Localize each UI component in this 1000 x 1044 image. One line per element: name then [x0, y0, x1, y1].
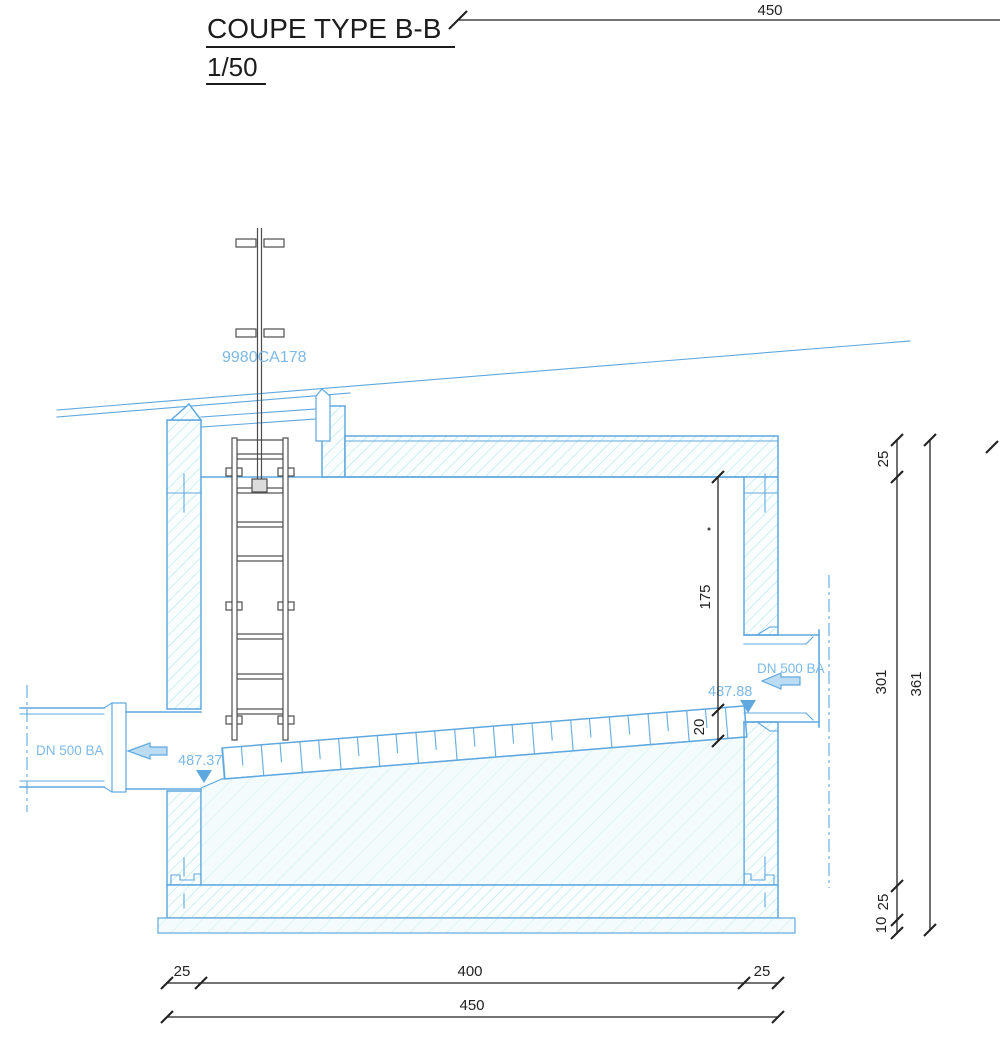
dim-channel-depth: 20	[691, 719, 708, 736]
left-wall-chamfer	[171, 404, 201, 420]
invert-marker-left-icon	[196, 770, 212, 783]
dim-slab: 25	[875, 451, 892, 468]
lean-concrete	[158, 918, 795, 933]
dim-floor: 25	[875, 894, 892, 911]
drawing-scale: 1/50	[207, 52, 258, 82]
dim-total-height: 361	[908, 671, 925, 696]
ground-lines	[57, 341, 910, 417]
pipe-socket	[112, 703, 126, 792]
floor-slab	[167, 885, 778, 918]
ladder-rail-left	[232, 438, 237, 740]
dim-wall-left: 25	[174, 963, 191, 980]
dim-inner-width: 400	[457, 963, 482, 980]
invert-level-left: 487.37	[178, 753, 222, 769]
dim-wall-right: 25	[754, 963, 771, 980]
rod-handle	[236, 239, 256, 247]
right-wall-upper	[744, 477, 778, 635]
dim-lean: 10	[873, 917, 890, 934]
concrete-structure	[158, 389, 795, 933]
rod-handle	[264, 239, 284, 247]
dim-top-total: 450	[757, 2, 782, 19]
section-drawing: 9980CA178 DN 500 BA DN 500 BA 487.37 487…	[0, 0, 1000, 1044]
ladder-rung	[237, 709, 283, 714]
equipment-tag-label: 9980CA178	[222, 349, 307, 366]
flow-arrow-left-icon	[128, 743, 167, 759]
top-slab	[345, 436, 778, 477]
left-wall-upper	[167, 420, 201, 709]
ladder-rung	[237, 454, 283, 459]
rod-handle	[264, 329, 284, 337]
ladder-rung	[237, 522, 283, 527]
dim-interior-height: 301	[873, 669, 890, 694]
right-pipe-label: DN 500 BA	[757, 661, 825, 676]
right-wall-lower	[744, 722, 778, 885]
ladder-rung	[237, 674, 283, 679]
ladder-rung	[237, 634, 283, 639]
rod-foot	[252, 479, 267, 492]
drawing-sheet: 9980CA178 DN 500 BA DN 500 BA 487.37 487…	[0, 0, 1000, 1044]
ladder-rung	[237, 556, 283, 561]
rod-handle	[236, 329, 256, 337]
drawing-title: COUPE TYPE B-B	[207, 13, 441, 44]
dim-total-width: 450	[459, 997, 484, 1014]
ladder-rail-right	[283, 438, 288, 740]
cover-frame	[316, 389, 330, 441]
reference-dot	[708, 528, 711, 531]
left-pipe-label: DN 500 BA	[36, 743, 104, 758]
title-block: COUPE TYPE B-B 1/50	[206, 13, 455, 84]
invert-level-right: 487.88	[708, 684, 752, 700]
dim-ceiling-to-invert: 175	[697, 584, 714, 609]
